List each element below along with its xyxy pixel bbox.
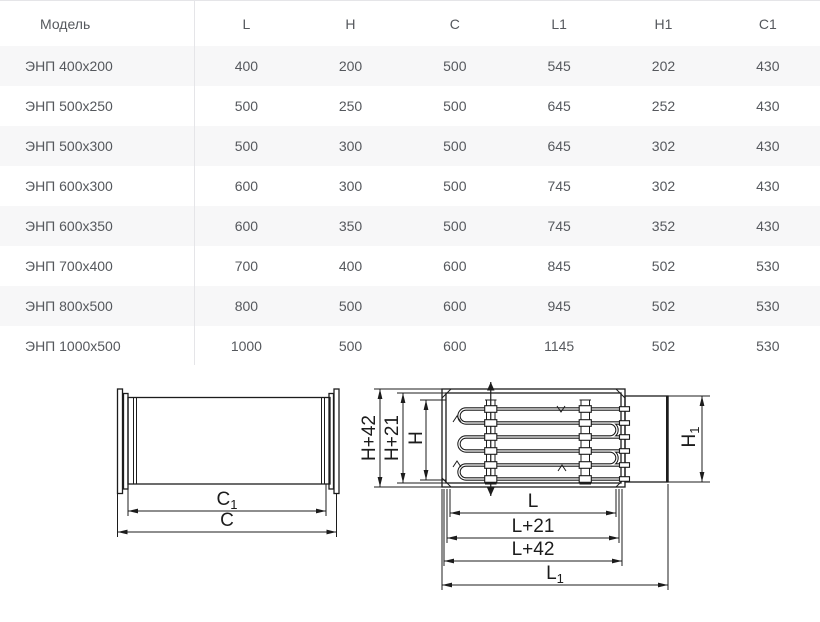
technical-drawings-section: C1 C [0, 365, 820, 622]
value-cell: 500 [403, 206, 507, 246]
support-bracket-left [485, 382, 497, 496]
value-cell: 600 [403, 326, 507, 367]
value-cell: 600 [403, 286, 507, 326]
dim-label-c: C [220, 510, 234, 531]
value-cell: 430 [716, 126, 820, 166]
column-header-h1: H1 [611, 1, 715, 47]
value-cell: 502 [611, 326, 715, 367]
value-cell: 430 [716, 206, 820, 246]
heater-front-view-diagram: H+42 H+21 H H1 [360, 371, 820, 621]
value-cell: 500 [194, 86, 298, 126]
column-header-h: H [298, 1, 402, 47]
value-cell: 400 [194, 46, 298, 86]
duct-body [118, 389, 340, 494]
table-row: ЭНП 600х350 600 350 500 745 352 430 [0, 206, 820, 246]
column-header-l: L [194, 1, 298, 47]
value-cell: 500 [298, 286, 402, 326]
table-row: ЭНП 400х200 400 200 500 545 202 430 [0, 46, 820, 86]
model-cell: ЭНП 800х500 [0, 286, 194, 326]
value-cell: 502 [611, 286, 715, 326]
value-cell: 1145 [507, 326, 611, 367]
model-cell: ЭНП 600х350 [0, 206, 194, 246]
value-cell: 500 [194, 126, 298, 166]
dim-label-l1: L1 [546, 563, 564, 586]
model-cell: ЭНП 500х250 [0, 86, 194, 126]
value-cell: 600 [194, 166, 298, 206]
value-cell: 250 [298, 86, 402, 126]
value-cell: 202 [611, 46, 715, 86]
table-row: ЭНП 500х300 500 300 500 645 302 430 [0, 126, 820, 166]
model-cell: ЭНП 600х300 [0, 166, 194, 206]
product-spec-page: Модель L H C L1 H1 C1 ЭНП 400х200 400 20… [0, 0, 820, 622]
dim-label-l21: L+21 [512, 516, 555, 537]
dimension-h1: H1 [668, 396, 710, 482]
value-cell: 430 [716, 166, 820, 206]
value-cell: 530 [716, 326, 820, 367]
value-cell: 430 [716, 86, 820, 126]
table-row: ЭНП 500х250 500 250 500 645 252 430 [0, 86, 820, 126]
model-cell: ЭНП 700х400 [0, 246, 194, 286]
value-cell: 502 [611, 246, 715, 286]
value-cell: 545 [507, 46, 611, 86]
dimensions-table: Модель L H C L1 H1 C1 ЭНП 400х200 400 20… [0, 0, 820, 367]
table-header-row: Модель L H C L1 H1 C1 [0, 1, 820, 47]
value-cell: 300 [298, 166, 402, 206]
value-cell: 700 [194, 246, 298, 286]
table-row: ЭНП 800х500 800 500 600 945 502 530 [0, 286, 820, 326]
model-cell: ЭНП 500х300 [0, 126, 194, 166]
table-row: ЭНП 1000х500 1000 500 600 1145 502 530 [0, 326, 820, 367]
column-header-c: C [403, 1, 507, 47]
dimension-l1: L1 [442, 484, 668, 590]
value-cell: 200 [298, 46, 402, 86]
value-cell: 945 [507, 286, 611, 326]
value-cell: 500 [298, 326, 402, 367]
value-cell: 645 [507, 86, 611, 126]
dimension-l: L [450, 489, 616, 517]
table-row: ЭНП 600х300 600 300 500 745 302 430 [0, 166, 820, 206]
support-bracket-right [579, 400, 591, 484]
value-cell: 300 [298, 126, 402, 166]
column-header-model: Модель [0, 1, 194, 47]
value-cell: 600 [194, 206, 298, 246]
dim-label-c1: C1 [217, 489, 238, 512]
duct-side-view-diagram: C1 C [90, 375, 370, 555]
dim-label-l42: L+42 [512, 539, 555, 560]
value-cell: 302 [611, 126, 715, 166]
value-cell: 500 [403, 86, 507, 126]
dim-label-h42: H+42 [360, 415, 380, 461]
value-cell: 500 [403, 126, 507, 166]
value-cell: 800 [194, 286, 298, 326]
value-cell: 1000 [194, 326, 298, 367]
value-cell: 430 [716, 46, 820, 86]
value-cell: 845 [507, 246, 611, 286]
value-cell: 745 [507, 166, 611, 206]
value-cell: 302 [611, 166, 715, 206]
value-cell: 352 [611, 206, 715, 246]
value-cell: 530 [716, 246, 820, 286]
value-cell: 350 [298, 206, 402, 246]
value-cell: 500 [403, 166, 507, 206]
value-cell: 600 [403, 246, 507, 286]
value-cell: 500 [403, 46, 507, 86]
table-row: ЭНП 700х400 700 400 600 845 502 530 [0, 246, 820, 286]
value-cell: 645 [507, 126, 611, 166]
model-cell: ЭНП 400х200 [0, 46, 194, 86]
model-cell: ЭНП 1000х500 [0, 326, 194, 367]
dim-label-l: L [528, 491, 539, 512]
terminal-box-side [625, 396, 668, 482]
value-cell: 400 [298, 246, 402, 286]
value-cell: 745 [507, 206, 611, 246]
dim-label-h: H [406, 431, 427, 445]
value-cell: 252 [611, 86, 715, 126]
column-header-c1: C1 [716, 1, 820, 47]
dimension-h: H [406, 400, 446, 480]
column-header-l1: L1 [507, 1, 611, 47]
dim-label-h21: H+21 [382, 415, 403, 461]
dim-label-h1: H1 [679, 427, 702, 448]
value-cell: 530 [716, 286, 820, 326]
